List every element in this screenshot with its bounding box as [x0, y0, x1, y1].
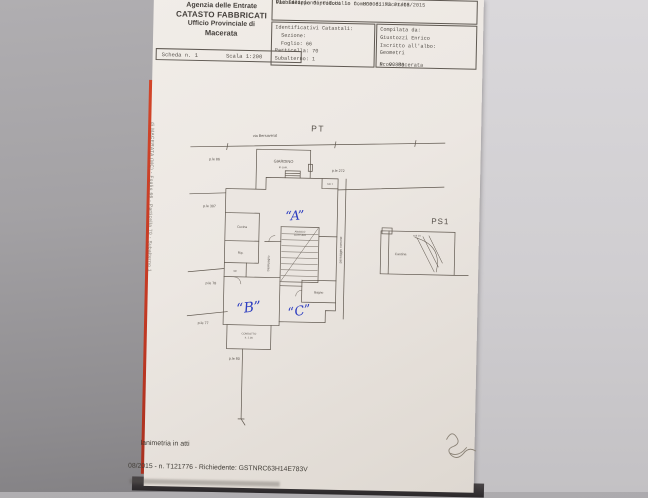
room-label-condotto1: CONDOTTO	[241, 331, 256, 335]
scale-label: Scala 1:200	[226, 52, 262, 60]
ps1-label: PS1	[431, 217, 449, 226]
ps1-stairs	[414, 236, 443, 273]
floor-plan-drawing: PT PS1 via Bersaverat GIARDINO in com. p…	[180, 112, 487, 478]
compiler-box: Compilata da: Giustozzi Enrico Iscritto …	[375, 24, 477, 70]
room-label-condotto2: h. 1.00	[245, 335, 254, 339]
garden-label: GIARDINO	[274, 159, 294, 164]
photo-of-cadastral-document: { "colors":{"red_folder":"#c43a24","pape…	[0, 0, 648, 492]
garden-note: in com.	[279, 165, 288, 169]
room-label-cucina: Cucina	[237, 225, 247, 229]
room-label-disimpegno: Disimpegno	[266, 255, 270, 271]
entrance-steps	[285, 171, 300, 178]
passage-label: passaggio comune	[338, 236, 343, 263]
room-label-angolo2: COTTURA	[294, 234, 306, 237]
passage-wall	[343, 179, 346, 319]
parcel-label: p.le 272	[332, 169, 345, 173]
agency-header: Agenzia delle Entrate CATASTO FABBRICATI…	[165, 1, 278, 38]
parcel-label: p.le 78	[205, 281, 216, 285]
footer-clipped-line	[130, 479, 280, 487]
compiler-num: N. 00800	[379, 62, 404, 70]
paper-sheet: Agenzia delle Entrate CATASTO FABBRICATI…	[144, 0, 484, 493]
parcel-label: p.le 307	[203, 204, 216, 208]
footer-line1: lanimetria in atti	[140, 440, 189, 448]
table-surface-right	[465, 0, 648, 492]
sheet-number: Scheda n. 1	[162, 51, 198, 59]
room-label-bagno: Bagno	[314, 290, 324, 294]
scheda-box: Scheda n. 1 Scala 1:200	[156, 48, 302, 63]
agency-line: Macerata	[165, 27, 277, 38]
parcel-label: p.le 80	[229, 357, 240, 361]
sub-label: sub 10	[413, 234, 421, 237]
blue-mark-b: “B”	[236, 299, 262, 318]
room-label-cantina: Cantina	[395, 252, 407, 256]
room-label-rip: Rip.	[238, 251, 244, 255]
west-boundaries	[187, 268, 228, 317]
sub-label: sub 1	[327, 183, 334, 186]
protocol-box: Dichiarazione protocollo n. MC0061173 21…	[271, 0, 477, 25]
blue-mark-a: “A”	[285, 208, 305, 224]
stamp-scribble	[446, 434, 475, 458]
protocol-variant: var. 4	[276, 0, 295, 7]
pt-label: PT	[311, 123, 325, 133]
street-label: via Bersaverat	[253, 134, 278, 138]
parcel-label: p.le 77	[198, 321, 209, 325]
parcel-label: p.le 86	[209, 157, 220, 161]
compiler-albo: Geometri	[380, 50, 473, 60]
street-line	[191, 138, 445, 152]
